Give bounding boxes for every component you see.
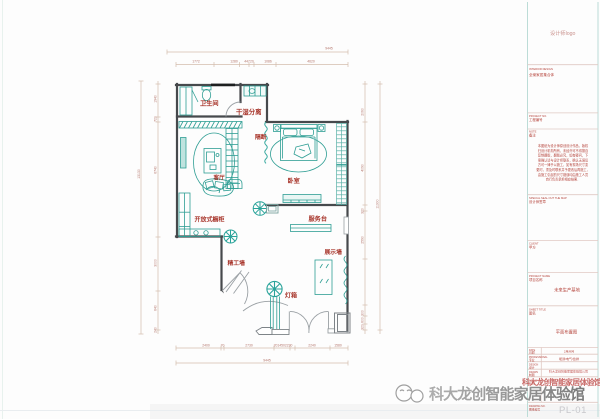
svg-text:SPECIAL SEAL OUT THE MAP: SPECIAL SEAL OUT THE MAP — [529, 196, 567, 200]
svg-text:暖通/电气/给排: 暖通/电气/给排 — [559, 356, 579, 361]
svg-text:设计: 设计 — [529, 366, 535, 370]
svg-text:甲方: 甲方 — [529, 244, 536, 249]
svg-text:320: 320 — [361, 208, 365, 214]
svg-text:灯箱: 灯箱 — [285, 292, 297, 300]
svg-text:2590: 2590 — [361, 236, 365, 244]
svg-text:精工墙: 精工墙 — [228, 259, 246, 267]
svg-text:600: 600 — [361, 317, 365, 323]
svg-text:方可一律予以施工，如有现场尺寸变: 方可一律予以施工，如有现场尺寸变 — [538, 162, 588, 167]
svg-text:更时，须及时联系并予更改后再施工，: 更时，须及时联系并予更改后再施工， — [536, 167, 589, 172]
svg-text:1772: 1772 — [192, 60, 200, 64]
svg-text:320: 320 — [361, 324, 365, 330]
svg-text:自行负责承担相应结果．: 自行负责承担相应结果． — [546, 177, 581, 182]
svg-text:平面布置图: 平面布置图 — [556, 328, 577, 335]
svg-text:11300: 11300 — [376, 199, 380, 208]
svg-text:图名: 图名 — [529, 310, 536, 315]
svg-text:PL-01: PL-01 — [559, 405, 587, 416]
svg-text:干湿分离: 干湿分离 — [236, 107, 262, 116]
svg-text:设计师签章: 设计师签章 — [529, 199, 547, 204]
svg-text:300: 300 — [361, 310, 365, 316]
svg-text:13130: 13130 — [137, 169, 141, 179]
svg-text:科大龙创智能家居体验馆: 科大龙创智能家居体验馆 — [429, 385, 585, 403]
svg-text:2014502230: 2014502230 — [274, 344, 293, 348]
svg-text:6740: 6740 — [154, 166, 158, 174]
svg-text:INTERIOR DESIGN: INTERIOR DESIGN — [529, 67, 553, 71]
svg-text:1940: 1940 — [154, 95, 158, 103]
svg-text:卫生间: 卫生间 — [200, 99, 219, 107]
svg-text:2400: 2400 — [202, 344, 210, 348]
svg-text:640: 640 — [154, 305, 158, 311]
svg-text:展示墙: 展示墙 — [325, 248, 343, 256]
svg-text:1580: 1580 — [334, 344, 342, 348]
svg-text:专业: 专业 — [529, 358, 535, 362]
svg-text:复制翻版，翻版必究，如有疑问，下: 复制翻版，翻版必究，如有疑问，下 — [538, 153, 588, 158]
svg-text:全案家居集合体: 全案家居集合体 — [529, 72, 555, 77]
svg-text:720: 720 — [154, 116, 158, 122]
svg-text:设计师logo: 设计师logo — [550, 29, 575, 37]
svg-text:1086: 1086 — [264, 60, 272, 64]
svg-text:备注: 备注 — [529, 133, 536, 138]
svg-text:240: 240 — [154, 327, 158, 333]
svg-text:2060: 2060 — [361, 108, 365, 116]
svg-text:隔断: 隔断 — [255, 133, 267, 141]
svg-text:1280: 1280 — [230, 60, 238, 64]
svg-text:3000: 3000 — [154, 259, 158, 267]
svg-text:2730: 2730 — [245, 344, 253, 348]
svg-text:日期: 日期 — [529, 351, 535, 355]
svg-text:归设计机构所有，未经许可不得擅自: 归设计机构所有，未经许可不得擅自 — [538, 148, 588, 153]
svg-text:服务台: 服务台 — [309, 215, 328, 223]
svg-text:科大龙创智能家居体验馆公司: 科大龙创智能家居体验馆公司 — [549, 368, 588, 373]
svg-text:本图纸为设计师原创设计作品，版权: 本图纸为设计师原创设计作品，版权 — [538, 143, 589, 148]
svg-text:未来生产基地: 未来生产基地 — [554, 287, 580, 294]
svg-text:70: 70 — [221, 344, 225, 348]
svg-text:制图: 制图 — [529, 373, 535, 377]
svg-text:开放式橱柜: 开放式橱柜 — [195, 216, 225, 224]
svg-text:9445: 9445 — [325, 47, 333, 51]
svg-text:图纸编号: 图纸编号 — [529, 408, 540, 412]
svg-text:4620: 4620 — [307, 60, 315, 64]
svg-text:44720: 44720 — [244, 60, 254, 64]
svg-text:项目名称: 项目名称 — [529, 277, 543, 282]
svg-text:2月/8月: 2月/8月 — [564, 350, 574, 354]
svg-text:卧室: 卧室 — [288, 177, 300, 185]
svg-text:由施工引起的尺寸错误均由施工人员: 由施工引起的尺寸错误均由施工人员 — [538, 172, 588, 177]
svg-text:需确认请与设计师联系，确认无误后: 需确认请与设计师联系，确认无误后 — [538, 157, 588, 162]
svg-text:客厅: 客厅 — [213, 174, 226, 182]
svg-text:9445: 9445 — [263, 359, 271, 363]
svg-text:2240: 2240 — [308, 344, 316, 348]
svg-text:4090: 4090 — [361, 164, 365, 172]
svg-text:工程编号: 工程编号 — [529, 117, 543, 122]
